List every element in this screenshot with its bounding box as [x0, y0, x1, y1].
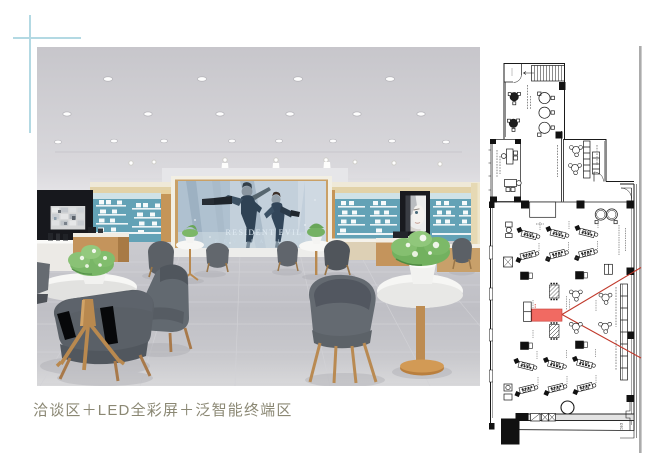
svg-text:RESIDENT EVIL: RESIDENT EVIL	[226, 228, 303, 237]
svg-text:DTC: DTC	[619, 423, 623, 431]
